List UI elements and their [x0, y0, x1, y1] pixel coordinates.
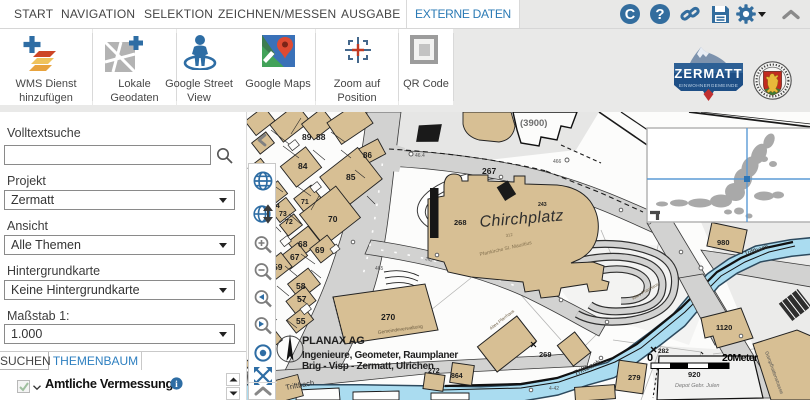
svg-text:269: 269 — [539, 350, 552, 359]
svg-text:466: 466 — [553, 159, 562, 165]
svg-text:0: 0 — [647, 352, 653, 364]
svg-text:Ingenieure, Geometer, Raumplan: Ingenieure, Geometer, Raumplaner — [302, 350, 458, 361]
svg-text:71: 71 — [301, 199, 309, 206]
svg-text:EINWOHNERGEMEINDE: EINWOHNERGEMEINDE — [679, 83, 738, 88]
svg-text:282: 282 — [658, 348, 669, 355]
svg-text:57: 57 — [297, 294, 307, 304]
svg-text:68: 68 — [298, 239, 308, 249]
svg-text:267: 267 — [482, 166, 496, 176]
svg-text:67: 67 — [290, 252, 300, 262]
svg-text:20Meter: 20Meter — [722, 352, 758, 364]
svg-text:?: ? — [655, 6, 664, 23]
svg-text:PLANAX AG: PLANAX AG — [302, 335, 365, 347]
svg-text:1120: 1120 — [716, 323, 732, 332]
svg-text:ZERMATT: ZERMATT — [674, 66, 742, 81]
svg-text:46.4: 46.4 — [415, 153, 425, 159]
svg-text:(3900): (3900) — [520, 118, 547, 129]
svg-text:920: 920 — [688, 370, 701, 379]
svg-text:84: 84 — [298, 161, 308, 171]
svg-text:279: 279 — [628, 373, 641, 382]
svg-text:980: 980 — [717, 238, 730, 247]
svg-text:55: 55 — [296, 316, 306, 326]
svg-text:4-42: 4-42 — [549, 386, 559, 392]
svg-text:C: C — [625, 7, 636, 23]
svg-text:69: 69 — [315, 245, 325, 255]
svg-text:70: 70 — [328, 214, 338, 224]
svg-text:72: 72 — [285, 219, 293, 226]
svg-text:73: 73 — [279, 211, 287, 218]
svg-text:243: 243 — [538, 202, 547, 208]
svg-text:270: 270 — [381, 312, 395, 322]
svg-text:85: 85 — [346, 172, 356, 182]
svg-text:465: 465 — [375, 266, 384, 272]
svg-text:268: 268 — [454, 218, 467, 227]
svg-text:864: 864 — [451, 373, 463, 380]
svg-text:Depot Gebr. Julen: Depot Gebr. Julen — [675, 383, 719, 389]
svg-text:i: i — [175, 380, 178, 390]
svg-text:88: 88 — [316, 132, 326, 142]
svg-text:86: 86 — [363, 151, 372, 160]
svg-text:89: 89 — [302, 132, 312, 142]
svg-text:58: 58 — [296, 281, 306, 291]
svg-text:Brig - Visp - Zermatt, Ulriche: Brig - Visp - Zermatt, Ulrichen — [302, 361, 434, 372]
